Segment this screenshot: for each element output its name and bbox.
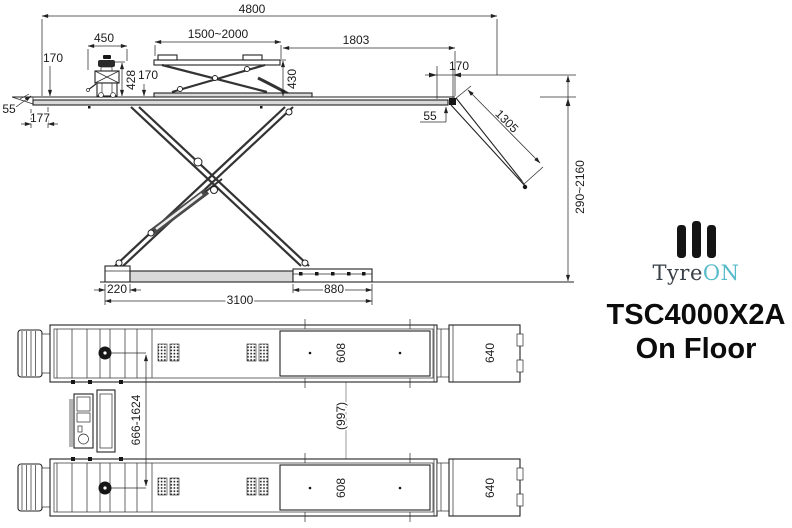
- dim-lifting-table-height: 430: [285, 69, 299, 89]
- logo-bar-icon: [707, 225, 716, 258]
- dim-total-length: 4800: [239, 2, 266, 16]
- power-unit-plan: [70, 380, 123, 461]
- front-platform: [18, 319, 523, 388]
- dim-base-extension: 880: [324, 282, 344, 296]
- dim-platform-width-rear: 608: [334, 478, 348, 498]
- variant-name: On Floor: [602, 333, 790, 367]
- power-unit: [87, 55, 120, 97]
- rubber-pad: [247, 344, 256, 361]
- rubber-pad: [259, 478, 268, 495]
- model-name: TSC4000X2A: [602, 299, 790, 333]
- dim-platform-rear-section: 1803: [343, 33, 370, 47]
- ramp-hinge: [449, 98, 456, 105]
- dim-tip-length: 177: [30, 111, 50, 125]
- dim-lift-height-range: 290~2160: [573, 160, 587, 214]
- brand-name-prefix: Tyre: [653, 261, 703, 285]
- dim-lifting-table-range: 1500~2000: [188, 27, 249, 41]
- brand-name: TyreON: [602, 261, 790, 285]
- dim-edge-right: 55: [423, 109, 437, 123]
- base-frame: [105, 266, 372, 282]
- dim-ramp-length: 1305: [492, 107, 521, 136]
- dim-ramp-width-front: 640: [483, 343, 497, 363]
- tyreon-logo-icon: [602, 220, 790, 258]
- brand-name-suffix: ON: [703, 261, 740, 285]
- plan-view: 666-1624 608 (997) 608 640 640: [18, 319, 523, 522]
- dim-platform-height-left: 170: [43, 51, 63, 65]
- dim-power-unit-width: 450: [94, 31, 114, 45]
- dim-platform-height-right: 170: [449, 59, 469, 73]
- rear-platform: [18, 453, 523, 522]
- rubber-pad: [259, 344, 268, 361]
- dim-platform-width-front: 608: [334, 343, 348, 363]
- dim-track-distance: (997): [334, 402, 348, 430]
- rubber-pad: [170, 478, 179, 495]
- logo-bar-icon: [692, 221, 701, 258]
- dim-adjust-range: 666-1624: [129, 394, 143, 445]
- rubber-pad: [158, 478, 167, 495]
- logo-bar-icon: [677, 225, 686, 258]
- dim-ramp-width-rear: 640: [483, 478, 497, 498]
- dim-base-foot-width: 220: [107, 282, 127, 296]
- rubber-pad: [170, 344, 179, 361]
- scissor-mechanism: [115, 107, 309, 266]
- dim-edge-left: 55: [2, 102, 16, 116]
- rubber-pad: [247, 478, 256, 495]
- scissor-lift-datasheet: 4800 450 1500~2000 1803 170 428 170: [0, 0, 792, 528]
- dim-power-unit-height: 428: [124, 70, 138, 90]
- dim-base-length: 3100: [227, 293, 254, 307]
- rubber-pad: [158, 344, 167, 361]
- dim-platform-height-mid: 170: [138, 68, 158, 82]
- side-view: 4800 450 1500~2000 1803 170 428 170: [2, 2, 587, 307]
- brand-block: TyreON TSC4000X2A On Floor: [602, 220, 790, 366]
